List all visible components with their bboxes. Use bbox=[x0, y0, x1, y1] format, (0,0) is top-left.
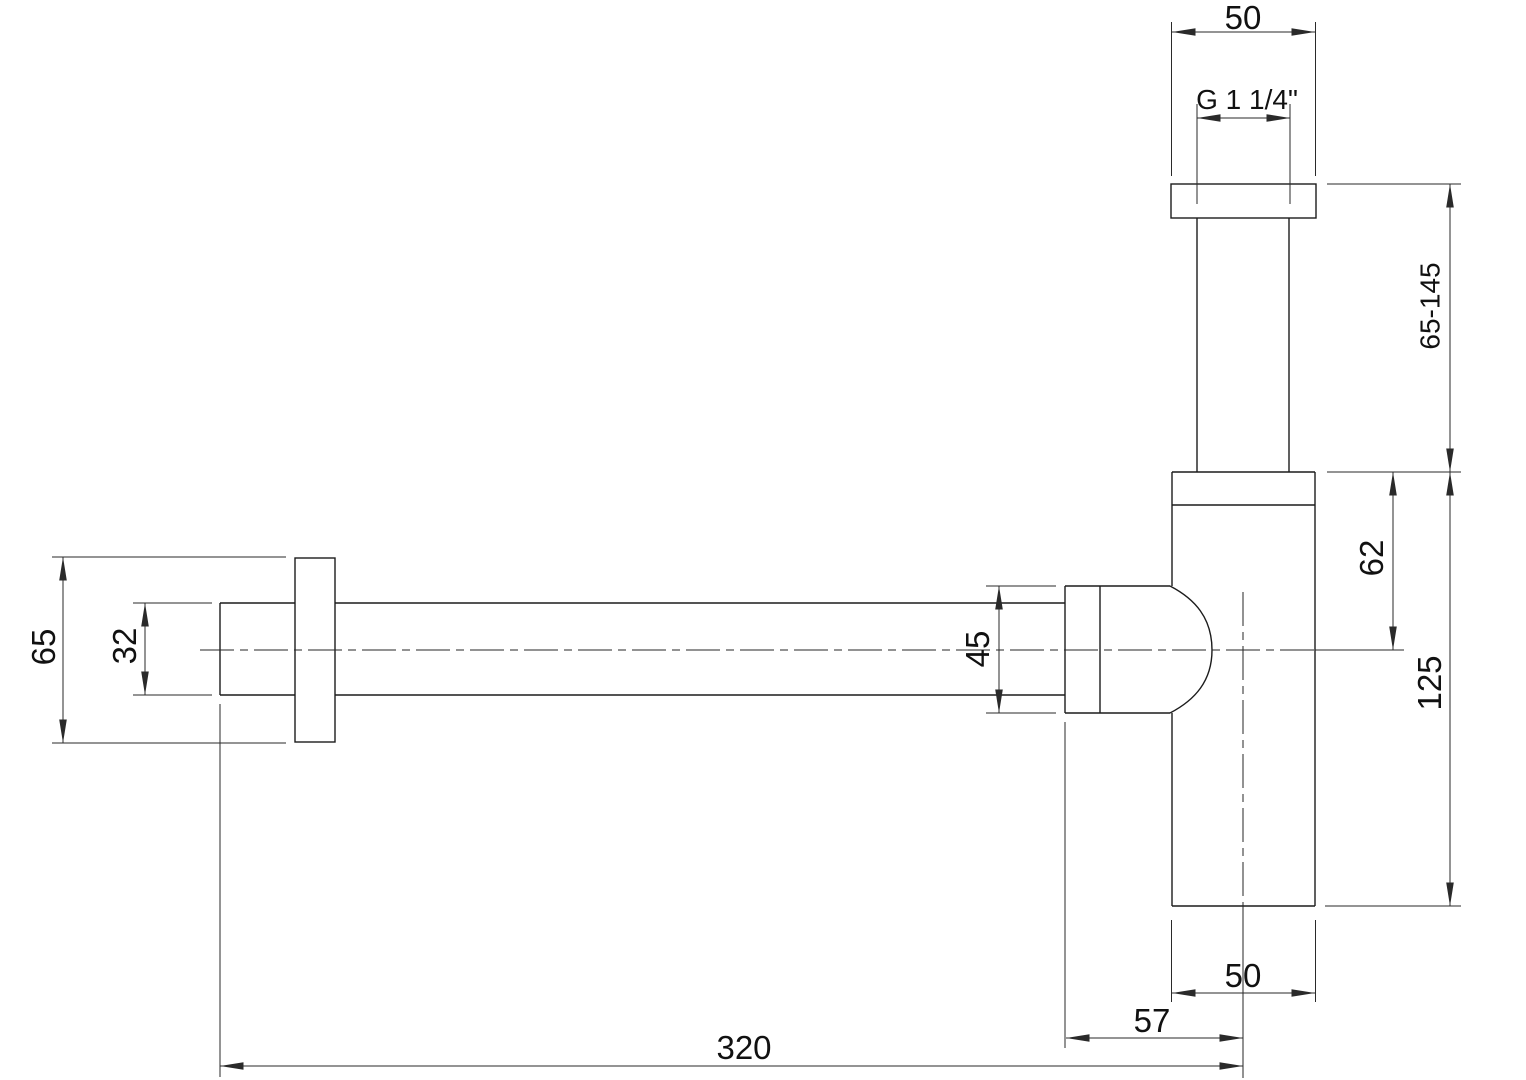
dim-thread-size: G 1 1/4" bbox=[1196, 84, 1298, 118]
dim-label-wall-tube-diameter: 32 bbox=[106, 628, 143, 665]
dim-wall-to-center: 320 bbox=[220, 1029, 1243, 1066]
dim-label-adjustable-height: 65-145 bbox=[1415, 262, 1446, 349]
wall-tube bbox=[220, 603, 1065, 695]
dim-body-top-to-center: 62 bbox=[1353, 472, 1393, 650]
dim-nut-diameter: 45 bbox=[959, 586, 999, 713]
dim-label-body-width: 50 bbox=[1225, 957, 1262, 994]
dim-label-thread-size: G 1 1/4" bbox=[1196, 84, 1298, 115]
top-flange bbox=[1171, 184, 1316, 218]
extension-lines bbox=[52, 22, 1461, 1077]
dim-label-body-top-to-center: 62 bbox=[1353, 540, 1390, 577]
drawing-canvas: 50 G 1 1/4" 65-145 62 125 50 57 320 65 3… bbox=[0, 0, 1526, 1080]
dim-label-nut-diameter: 45 bbox=[959, 631, 996, 668]
dim-adjustable-height: 65-145 bbox=[1415, 184, 1450, 472]
tailpiece-pipe bbox=[1197, 218, 1289, 472]
dim-body-width: 50 bbox=[1172, 957, 1315, 994]
dim-label-wall-to-center: 320 bbox=[716, 1029, 771, 1066]
dim-label-wall-flange-diameter: 65 bbox=[25, 629, 62, 666]
dim-top-flange-width: 50 bbox=[1172, 0, 1315, 36]
dim-wall-tube-diameter: 32 bbox=[106, 603, 145, 695]
bottle-trap-technical-drawing: 50 G 1 1/4" 65-145 62 125 50 57 320 65 3… bbox=[0, 0, 1526, 1080]
dim-wall-flange-diameter: 65 bbox=[25, 557, 63, 743]
top-flange-outline bbox=[1171, 184, 1316, 218]
dim-label-nut-to-center: 57 bbox=[1134, 1002, 1171, 1039]
dim-label-body-height: 125 bbox=[1411, 655, 1448, 710]
dim-label-top-flange-width: 50 bbox=[1225, 0, 1262, 36]
dim-body-height: 125 bbox=[1411, 472, 1450, 906]
dim-nut-to-center: 57 bbox=[1066, 1002, 1243, 1039]
